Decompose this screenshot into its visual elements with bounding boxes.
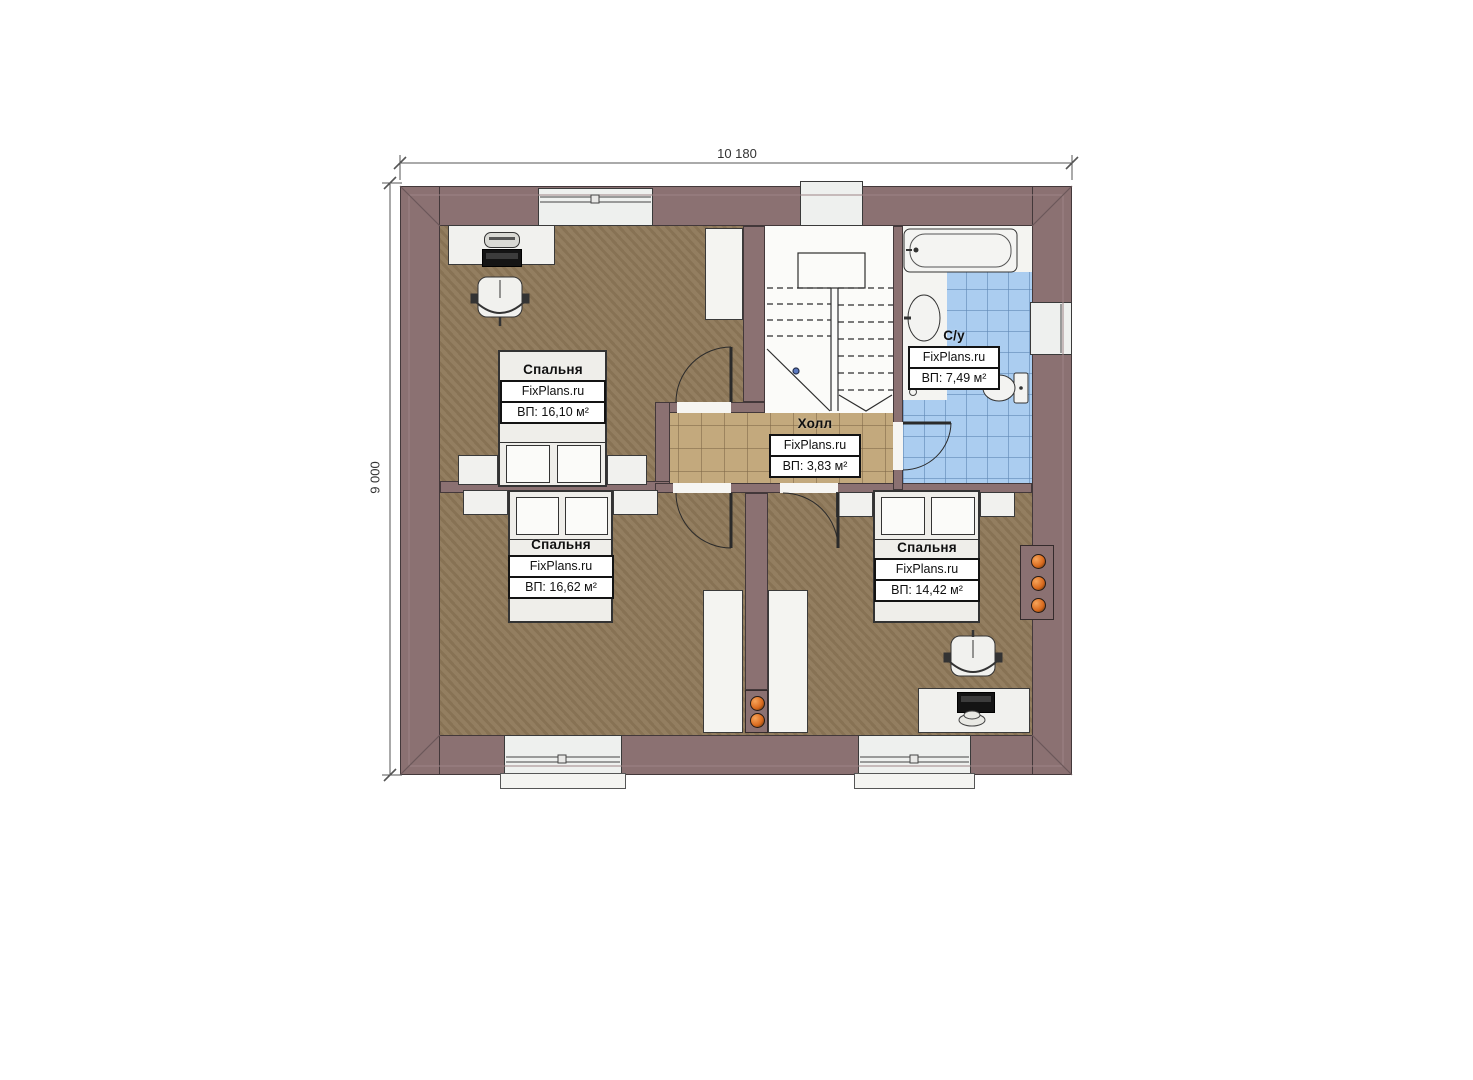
exterior-wall-top [400, 186, 1072, 226]
floor-plan-canvas: Спальня FixPlans.ru ВП: 16,10 м² Спальня… [0, 0, 1473, 1080]
laptop-icon [957, 692, 995, 713]
pillow [881, 497, 925, 535]
laptop-icon [482, 249, 522, 267]
pillow [931, 497, 975, 535]
nightstand [836, 492, 873, 517]
exterior-wall-bottom [400, 735, 1072, 775]
blanket-edge [500, 442, 605, 443]
vent-hole-icon [1031, 576, 1046, 591]
window-sill [500, 773, 626, 789]
vent-hole-icon [1031, 554, 1046, 569]
laptop-screen [961, 696, 991, 702]
bathroom-top-area [903, 226, 1032, 272]
doorway-bathroom [893, 422, 903, 470]
room-area: ВП: 16,10 м² [500, 403, 606, 424]
nightstand [458, 455, 498, 485]
brand-watermark: FixPlans.ru [908, 346, 1000, 369]
room-label-bedroom-bottom-right: Спальня FixPlans.ru ВП: 14,42 м² [874, 540, 980, 602]
closet-bedroom1 [705, 228, 743, 320]
wall-bedroom1-stairwell [743, 226, 765, 402]
brand-watermark: FixPlans.ru [874, 558, 980, 581]
doorway-bedroom1 [677, 402, 731, 413]
chimney-block-right [1020, 545, 1054, 620]
room-title: Спальня [531, 537, 591, 552]
vent-block-bottom [745, 690, 768, 733]
window-bottom-left [504, 735, 622, 775]
nightstand [607, 455, 647, 485]
pillow [565, 497, 608, 535]
room-label-bedroom-top-left: Спальня FixPlans.ru ВП: 16,10 м² [500, 362, 606, 424]
wall-between-bottom-bedrooms [745, 493, 768, 690]
doorway-bedroom2 [673, 483, 731, 493]
room-label-bedroom-bottom-left: Спальня FixPlans.ru ВП: 16,62 м² [508, 537, 614, 599]
pillow [516, 497, 559, 535]
closet-bedroom2 [703, 590, 743, 733]
dimension-height-label: 9 000 [368, 443, 383, 513]
window-top-stair [800, 181, 863, 226]
stairwell-floor [765, 226, 903, 413]
nightstand [463, 490, 508, 515]
laptop-screen [486, 253, 518, 259]
room-title: Спальня [523, 362, 583, 377]
room-title: Холл [798, 416, 833, 431]
room-label-bathroom: С/у FixPlans.ru ВП: 7,49 м² [906, 328, 1002, 390]
window-top-left [538, 188, 653, 226]
nightstand [613, 490, 658, 515]
exterior-wall-right [1032, 186, 1072, 775]
vent-hole-icon [750, 713, 765, 728]
wall-hall-left-stub [655, 402, 670, 493]
doorway-bedroom3 [780, 483, 838, 493]
printer-slot [489, 237, 515, 240]
window-sill [854, 773, 975, 789]
room-title: С/у [943, 328, 965, 343]
window-bathroom-right [1030, 302, 1072, 355]
room-area: ВП: 16,62 м² [508, 578, 614, 599]
room-area: ВП: 14,42 м² [874, 581, 980, 602]
room-label-hall: Холл FixPlans.ru ВП: 3,83 м² [765, 416, 865, 478]
pillow [506, 445, 550, 483]
brand-watermark: FixPlans.ru [500, 380, 606, 403]
dimension-width-label: 10 180 [682, 146, 792, 161]
closet-bedroom3 [768, 590, 808, 733]
vent-hole-icon [1031, 598, 1046, 613]
room-title: Спальня [897, 540, 957, 555]
window-bottom-right [858, 735, 971, 775]
room-area: ВП: 3,83 м² [769, 457, 861, 478]
dimension-line-left [382, 177, 402, 781]
brand-watermark: FixPlans.ru [508, 555, 614, 578]
room-area: ВП: 7,49 м² [908, 369, 1000, 390]
printer-icon [484, 232, 520, 248]
nightstand [980, 492, 1015, 517]
brand-watermark: FixPlans.ru [769, 434, 861, 457]
exterior-wall-left [400, 186, 440, 775]
pillow [557, 445, 601, 483]
vent-hole-icon [750, 696, 765, 711]
